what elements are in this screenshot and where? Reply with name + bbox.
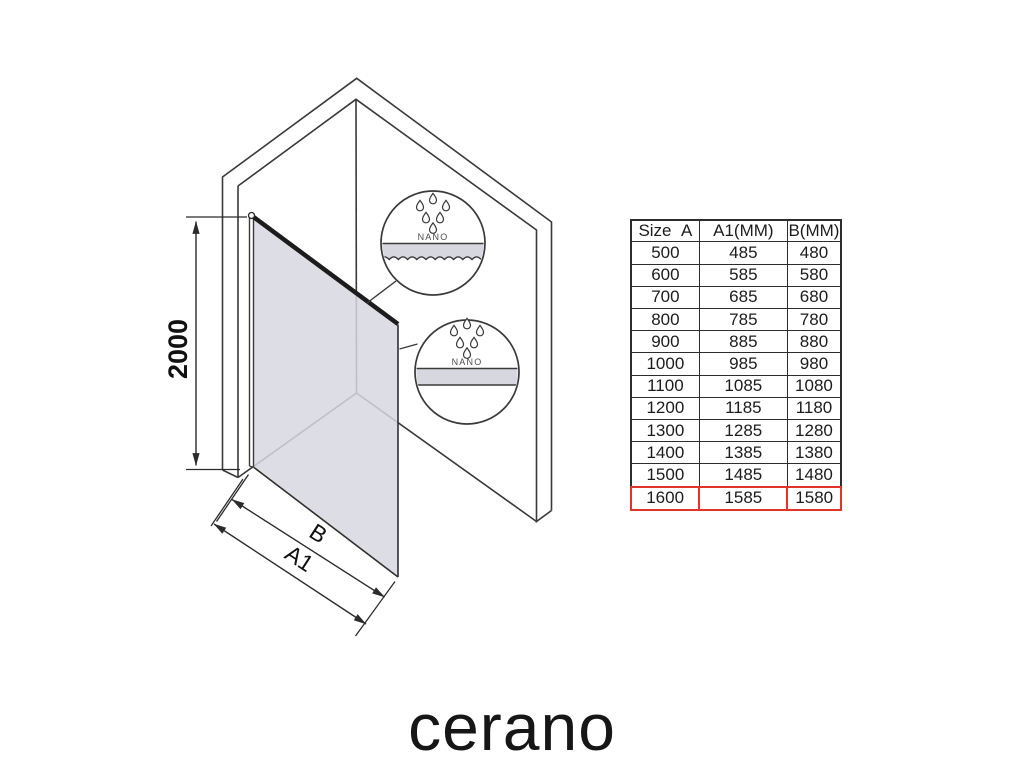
table-row: 600 585 580 [631,264,841,286]
cell-size: 1600 [631,487,699,510]
nano-label-bottom: NANO [452,357,483,367]
table-row: 1100 1085 1080 [631,375,841,397]
leader-line-bottom-callout [400,344,418,349]
cell-b: 680 [787,286,841,308]
cell-b: 1580 [787,487,841,510]
nano-callout-top: NANO [379,191,490,295]
leader-line-top-callout [367,281,396,303]
table-row: 900 885 880 [631,331,841,353]
table-row: 1500 1485 1480 [631,464,841,487]
cell-b: 580 [787,264,841,286]
cell-size: 1300 [631,420,699,442]
cell-a1: 585 [699,264,787,286]
table-row: 1000 985 980 [631,353,841,375]
dimension-height-2000: 2000 [163,217,247,470]
cell-size: 800 [631,309,699,331]
wall-profile [250,216,254,468]
cell-b: 1280 [787,420,841,442]
cell-b: 1080 [787,375,841,397]
cell-a1: 1385 [699,442,787,464]
cell-a1: 1085 [699,375,787,397]
cell-a1: 785 [699,309,787,331]
cell-b: 980 [787,353,841,375]
highlight-row: 1600 1585 1580 [631,487,841,510]
cell-a1: 1285 [699,420,787,442]
cell-b: 1480 [787,464,841,487]
measure-point-dot [249,213,255,219]
table-header-row: Size A A1(MM) B(MM) [631,220,841,242]
cell-size: 1500 [631,464,699,487]
cell-a1: 685 [699,286,787,308]
cell-size: 900 [631,331,699,353]
table-row: 1200 1185 1180 [631,397,841,419]
cell-a1: 1485 [699,464,787,487]
size-table: Size A A1(MM) B(MM) 500 485 480 600 585 … [630,219,842,511]
cell-a1: 885 [699,331,787,353]
cell-a1: 1585 [699,487,787,510]
col-header-a1: A1(MM) [699,220,787,242]
table-row: 800 785 780 [631,309,841,331]
table-row: 1300 1285 1280 [631,420,841,442]
cell-size: 1100 [631,375,699,397]
brand-logo: cerano [408,694,616,760]
cell-b: 880 [787,331,841,353]
cell-b: 1180 [787,397,841,419]
cell-a1: 485 [699,242,787,264]
height-dimension-label: 2000 [163,319,193,379]
cell-b: 480 [787,242,841,264]
page-canvas: NANO NANO 2000 [0,0,1024,768]
table-row: 500 485 480 [631,242,841,264]
product-diagram-svg: NANO NANO 2000 [0,0,1024,768]
cell-b: 780 [787,309,841,331]
nano-label-top: NANO [418,232,449,242]
cell-size: 1400 [631,442,699,464]
cell-size: 500 [631,242,699,264]
cell-size: 1200 [631,397,699,419]
col-header-size-a: Size A [631,220,699,242]
nano-callout-bottom: NANO [413,318,521,424]
cell-b: 1380 [787,442,841,464]
table-row: 1400 1385 1380 [631,442,841,464]
cell-a1: 1185 [699,397,787,419]
cell-size: 700 [631,286,699,308]
cell-a1: 985 [699,353,787,375]
cell-size: 600 [631,264,699,286]
col-header-b: B(MM) [787,220,841,242]
cell-size: 1000 [631,353,699,375]
table-row: 700 685 680 [631,286,841,308]
